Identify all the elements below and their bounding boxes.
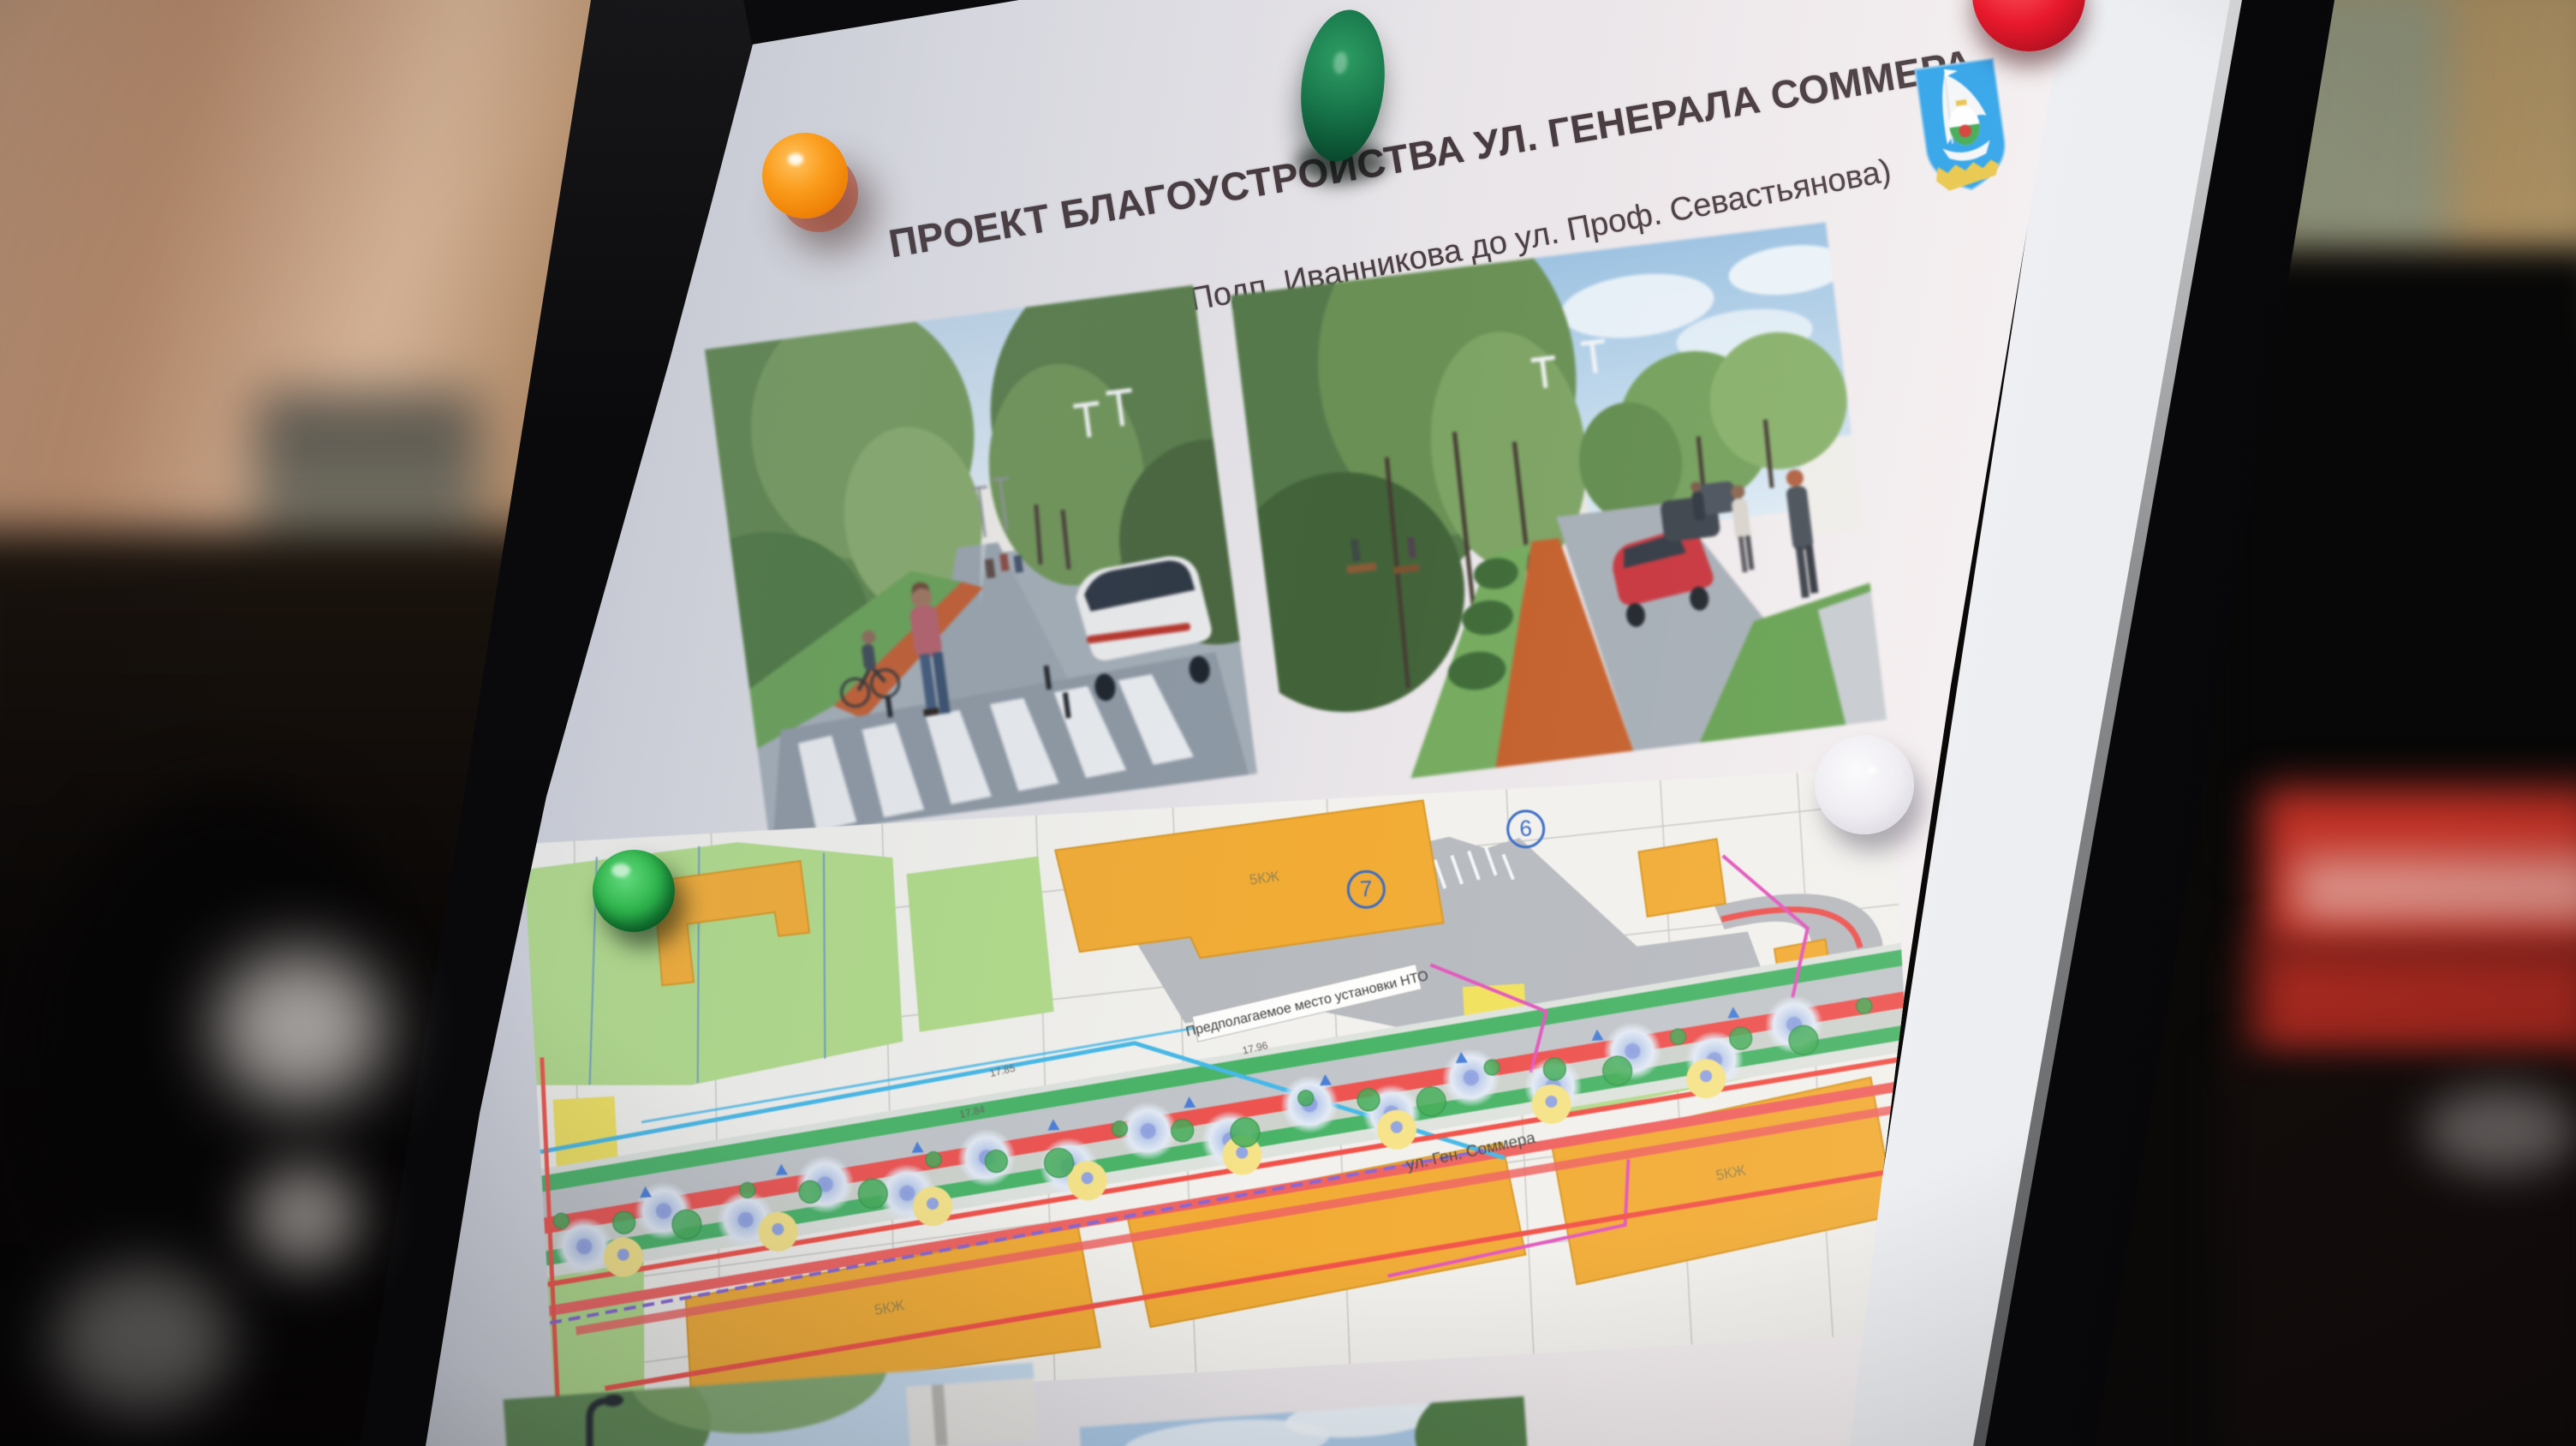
site-plan: 6 7 Предполагаемое место установки НТО у… (523, 768, 1923, 1408)
plan-number-6: 6 (1519, 815, 1533, 841)
photo-scene: ПРОЕКТ БЛАГОУСТРОЙСТВА УЛ. ГЕНЕРАЛА СОММ… (0, 0, 2576, 1446)
bokeh-light-3 (248, 1165, 360, 1268)
background-right-gray-blob (2424, 1088, 2576, 1174)
bokeh-light-2 (214, 951, 385, 1105)
plan-number-7: 7 (1359, 875, 1373, 902)
bokeh-light-1 (51, 1268, 231, 1413)
background-right-light-stripe (2295, 857, 2576, 925)
magnet-white (1815, 735, 1914, 834)
background-right-dark-band (2227, 248, 2576, 865)
magnet-green-bright (593, 850, 675, 932)
background-right-red-sign-2 (2252, 942, 2576, 1071)
magnet-orange (762, 133, 848, 218)
render-street-crosswalk (705, 285, 1257, 838)
render-street-bike-lane (1231, 223, 1887, 793)
kaliningrad-coat-of-arms-icon (1910, 55, 2017, 200)
render-bottom-right-partial (1080, 1396, 1528, 1446)
